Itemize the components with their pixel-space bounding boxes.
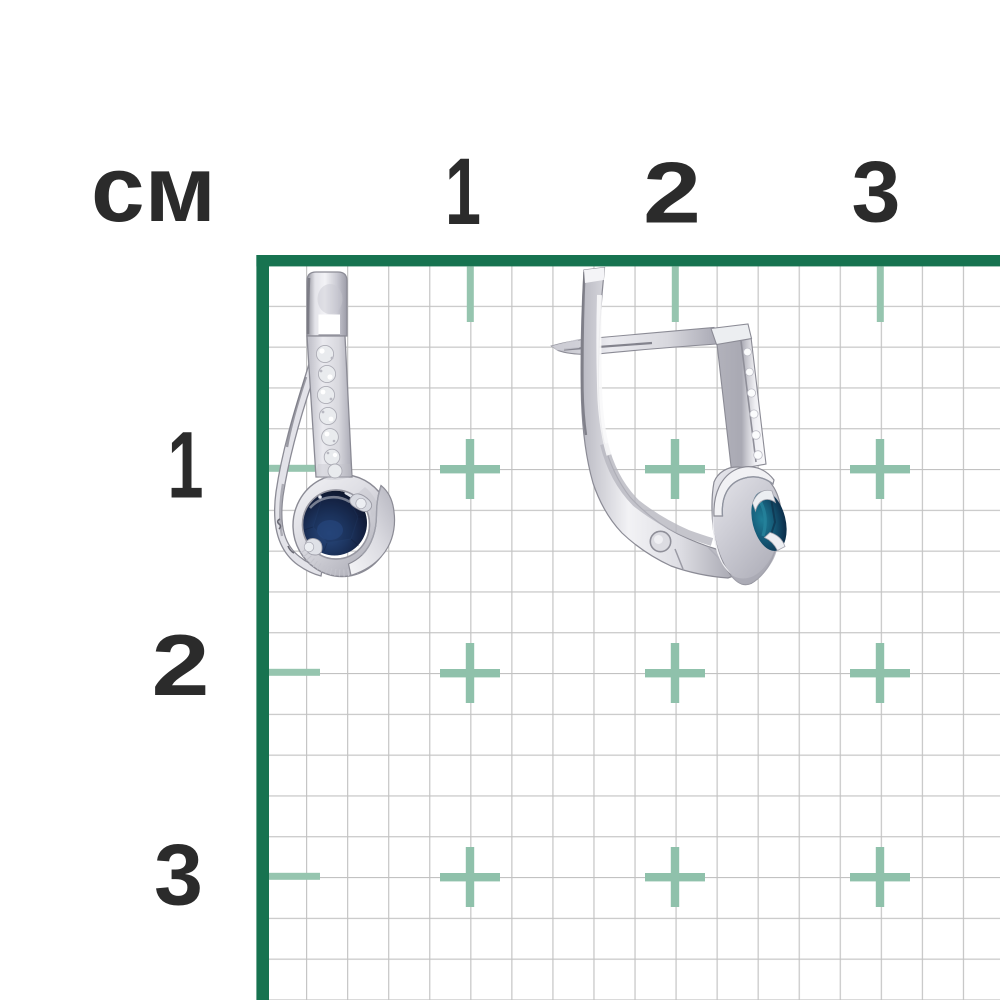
svg-text:1: 1	[168, 413, 204, 519]
svg-text:3: 3	[852, 145, 901, 241]
svg-text:2: 2	[643, 146, 701, 242]
svg-text:1: 1	[445, 139, 481, 245]
svg-text:3: 3	[154, 828, 203, 924]
svg-text:см: см	[91, 136, 216, 241]
svg-text:2: 2	[152, 618, 210, 714]
